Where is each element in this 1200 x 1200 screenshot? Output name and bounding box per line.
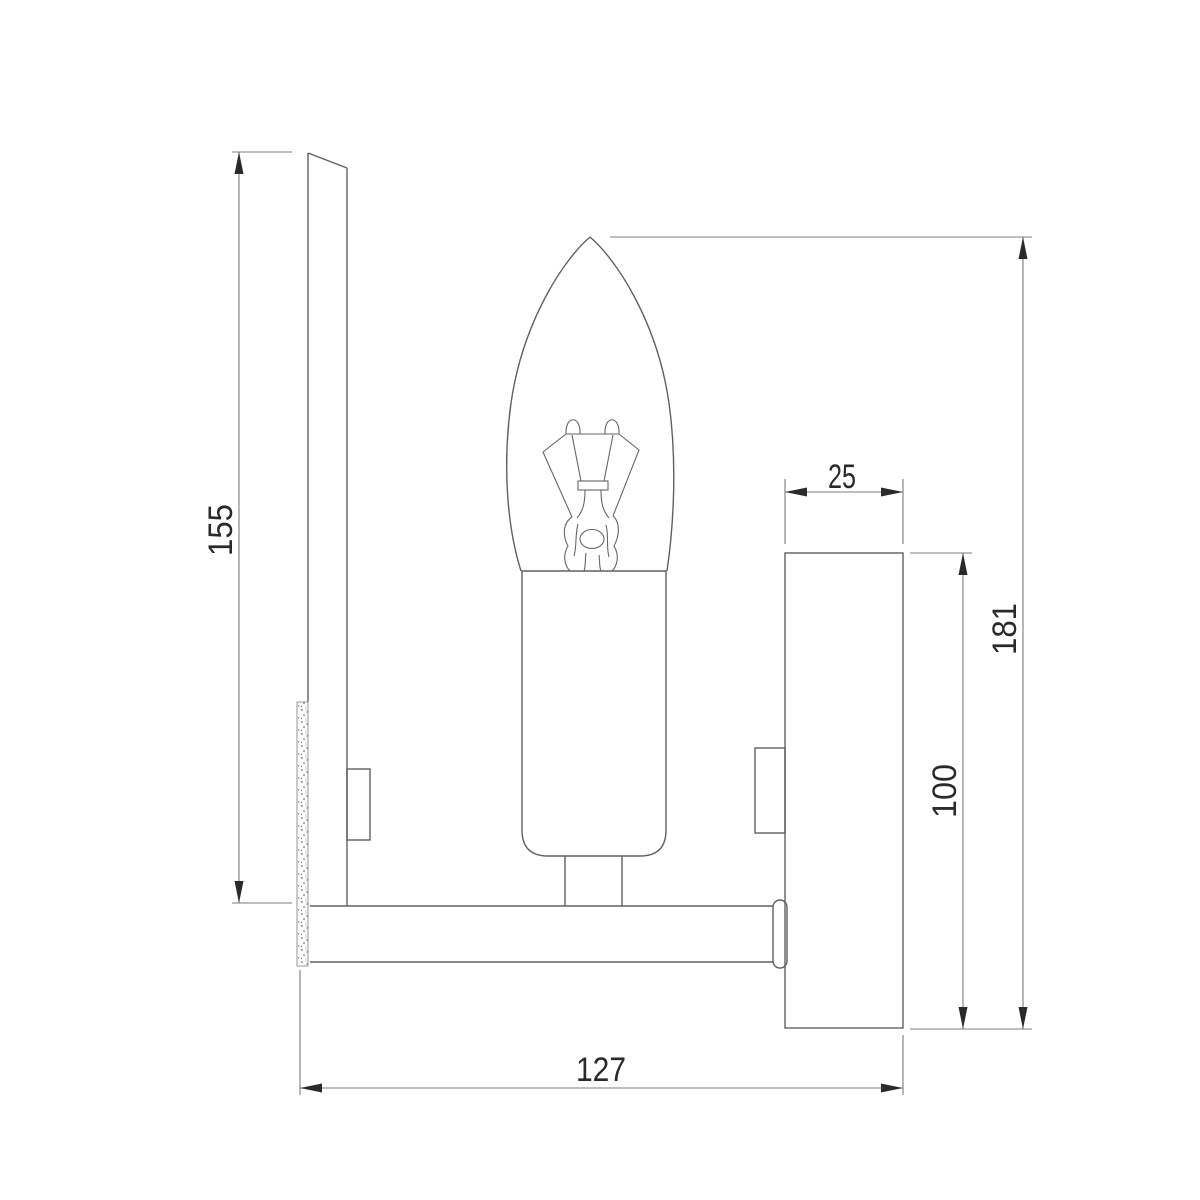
lamp-socket (522, 571, 666, 856)
canopy-cylinder (785, 553, 903, 1028)
mounting-arm (310, 906, 773, 962)
bulb-filament (543, 420, 639, 571)
canopy-switch-box (755, 748, 785, 833)
dim-backplate-height (232, 152, 292, 903)
overall-height-label: 181 (986, 603, 1024, 655)
sconce-outline-group (297, 153, 903, 1028)
socket-stem (565, 856, 622, 906)
overall-depth-label: 127 (576, 1051, 626, 1089)
backplate-connector-box (347, 769, 370, 840)
canopy-depth-label: 25 (828, 458, 856, 496)
backplate (308, 153, 347, 906)
dim-overall-height (610, 237, 1032, 1029)
backplate-height-label: 155 (202, 504, 240, 556)
candle-bulb (507, 237, 674, 571)
canopy-height-label: 100 (926, 764, 964, 818)
wall-sconce-dimension-drawing: 155 25 181 100 127 (0, 0, 1200, 1200)
wall-gasket-strip (297, 702, 308, 966)
technical-drawing-page: 155 25 181 100 127 (0, 0, 1200, 1200)
